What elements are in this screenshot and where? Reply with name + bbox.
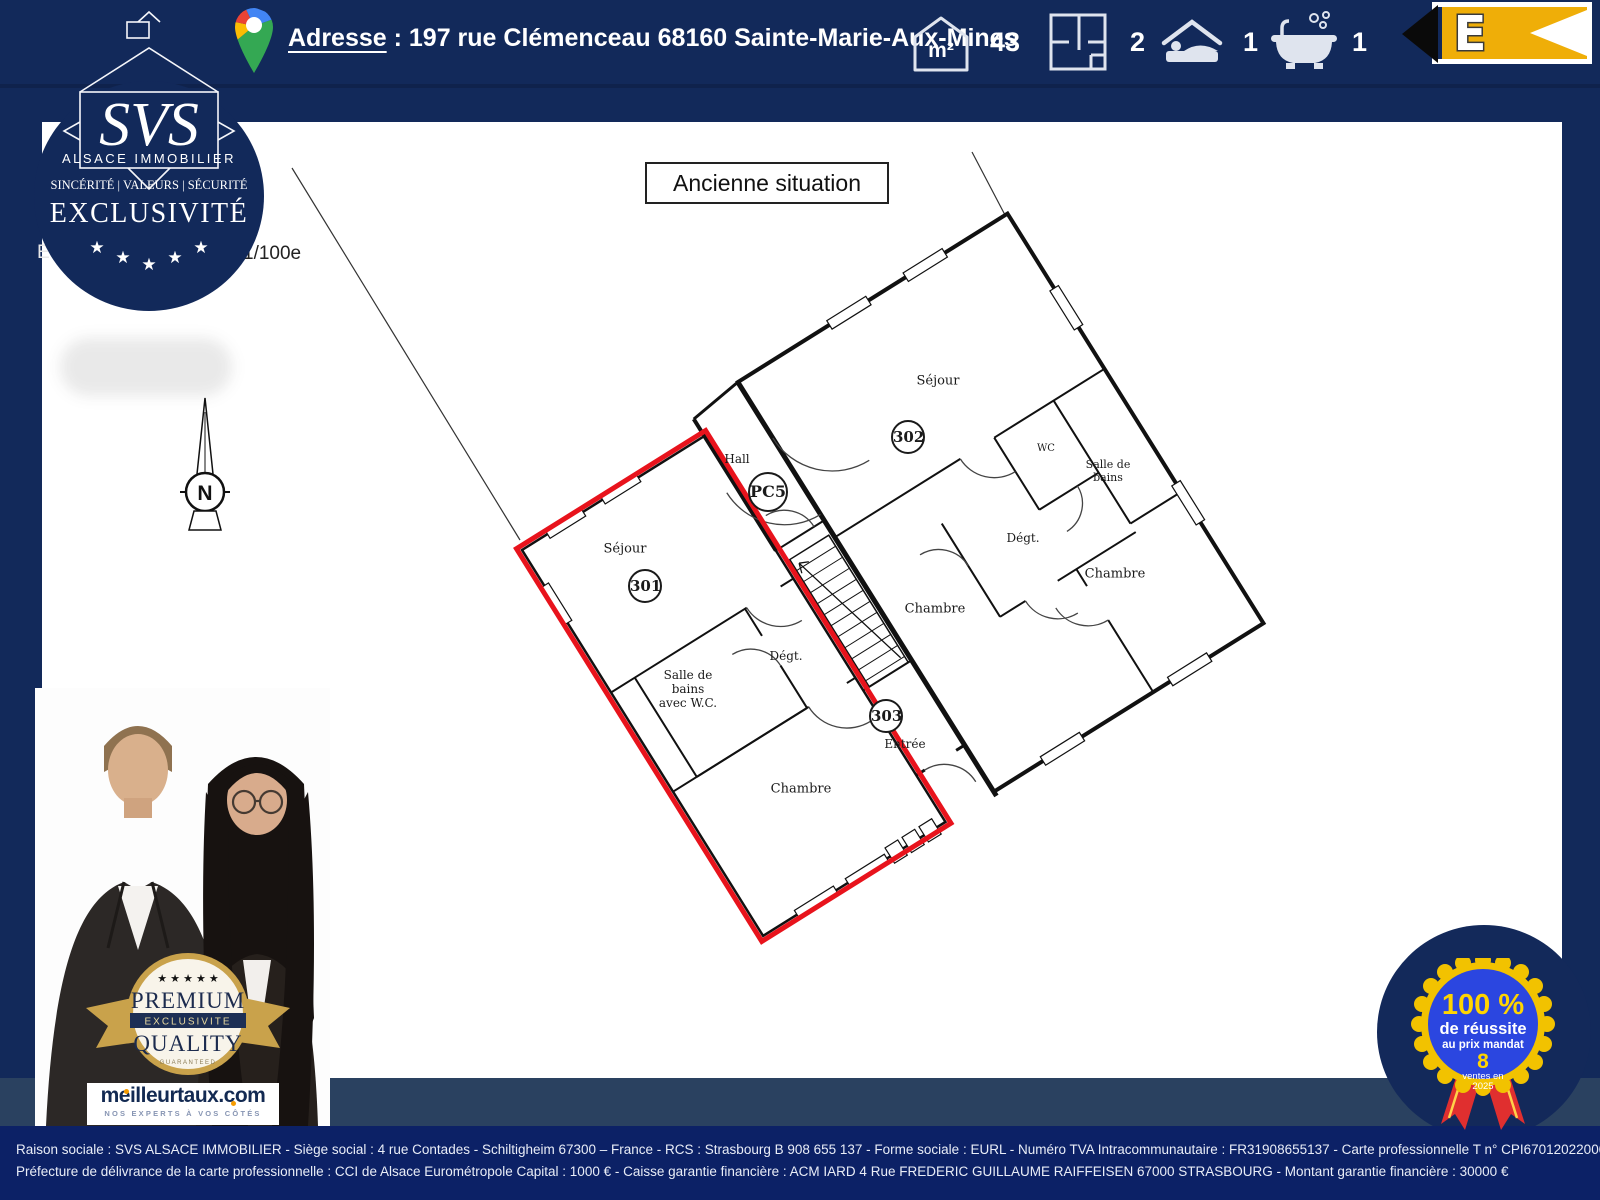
room-label-sdb-301: Salle de bains avec W.C. [659, 668, 717, 710]
meilleurtaux-logo: meilleurtaux.com NOS EXPERTS À VOS CÔTÉS [87, 1083, 279, 1125]
premium-line2: QUALITY [133, 1031, 242, 1056]
logo-subtitle: ALSACE IMMOBILIER [62, 151, 236, 166]
floorplan-icon [1048, 12, 1108, 72]
room-label-degt-302: Dégt. [1006, 531, 1039, 545]
parcel-boundary-line [292, 168, 520, 540]
legal-line-2: Préfecture de délivrance de la carte pro… [16, 1164, 1584, 1179]
premium-band: EXCLUSIVITE [144, 1017, 231, 1028]
premium-stars: ★ ★ ★ ★ ★ [157, 973, 219, 985]
energy-rating-badge: E [1398, 0, 1598, 68]
room-label-sdb-302: Salle de bains [1086, 459, 1131, 485]
star-icon: ★ [89, 238, 104, 257]
area-house-icon: m² [908, 12, 974, 74]
room-label-sejour-301: Séjour [603, 541, 646, 556]
bathrooms-value: 1 [1352, 27, 1367, 58]
north-compass-icon [180, 398, 230, 530]
star-icon: ★ [141, 255, 156, 274]
bedroom-icon [1160, 16, 1224, 68]
plan-title: Ancienne situation [645, 162, 889, 204]
room-label-wc: WC [1037, 443, 1055, 455]
room-label-hall: Hall [724, 452, 749, 466]
agency-logo: SVS ALSACE IMMOBILIER SINCÉRITÉ | VALEUR… [20, 0, 280, 320]
energy-rating-letter: E [1454, 6, 1487, 62]
room-label-chambre-302a: Chambre [905, 601, 966, 616]
logo-exclusivity: EXCLUSIVITÉ [50, 198, 248, 229]
star-icon: ★ [115, 248, 130, 267]
lot-number-pc5: PC5 [748, 472, 788, 512]
room-label-sejour-302: Séjour [916, 373, 959, 388]
success-count: 8 [1477, 1050, 1489, 1073]
legal-band: Raison sociale : SVS ALSACE IMMOBILIER -… [0, 1126, 1600, 1200]
logo-name: SVS [99, 91, 199, 159]
room-label-degt-301: Dégt. [769, 649, 802, 663]
logo-values-line: SINCÉRITÉ | VALEURS | SÉCURITÉ [51, 178, 248, 192]
building-walls [500, 207, 1272, 946]
success-percent: 100 % [1442, 989, 1524, 1021]
compass-letter: N [197, 482, 212, 505]
star-icon: ★ [193, 238, 208, 257]
premium-line1: PREMIUM [131, 988, 245, 1013]
watermark-smudge [60, 338, 232, 396]
door-arcs [646, 315, 1181, 856]
parcel-boundary-line-2 [972, 152, 1005, 215]
lot-number-301: 301 [628, 569, 662, 603]
meilleurtaux-brand: meilleurtaux.com [87, 1083, 279, 1109]
success-badge: 100 % de réussite au prix mandat 8 vente… [1405, 958, 1561, 1138]
meilleurtaux-tagline: NOS EXPERTS À VOS CÔTÉS [87, 1109, 279, 1118]
room-label-entree: Entrée [884, 737, 925, 751]
flyer-root: N [0, 0, 1600, 1200]
success-line4: 2025 [1472, 1081, 1493, 1092]
brand-dot-icon [124, 1089, 129, 1094]
premium-quality-badge: ★ ★ ★ ★ ★ PREMIUM EXCLUSIVITE QUALITY GU… [80, 950, 296, 1082]
room-label-chambre-302b: Chambre [1085, 566, 1146, 581]
star-icon: ★ [167, 248, 182, 267]
room-label-chambre-301: Chambre [771, 781, 832, 796]
windows [500, 207, 1272, 946]
address-label: Adresse [288, 24, 387, 52]
lot-number-302: 302 [891, 420, 925, 454]
bathroom-icon [1268, 8, 1340, 72]
rooms-value: 2 [1130, 27, 1145, 58]
lot-301-red-outline [516, 431, 950, 942]
brand-dot-icon [231, 1101, 236, 1106]
bedrooms-value: 1 [1243, 27, 1258, 58]
premium-line3: GUARANTEED [160, 1060, 217, 1066]
lot-number-303: 303 [869, 699, 903, 733]
success-line1: de réussite [1439, 1020, 1526, 1038]
area-unit: m² [928, 39, 954, 62]
legal-line-1: Raison sociale : SVS ALSACE IMMOBILIER -… [16, 1142, 1584, 1157]
area-value: 43 [990, 27, 1020, 58]
